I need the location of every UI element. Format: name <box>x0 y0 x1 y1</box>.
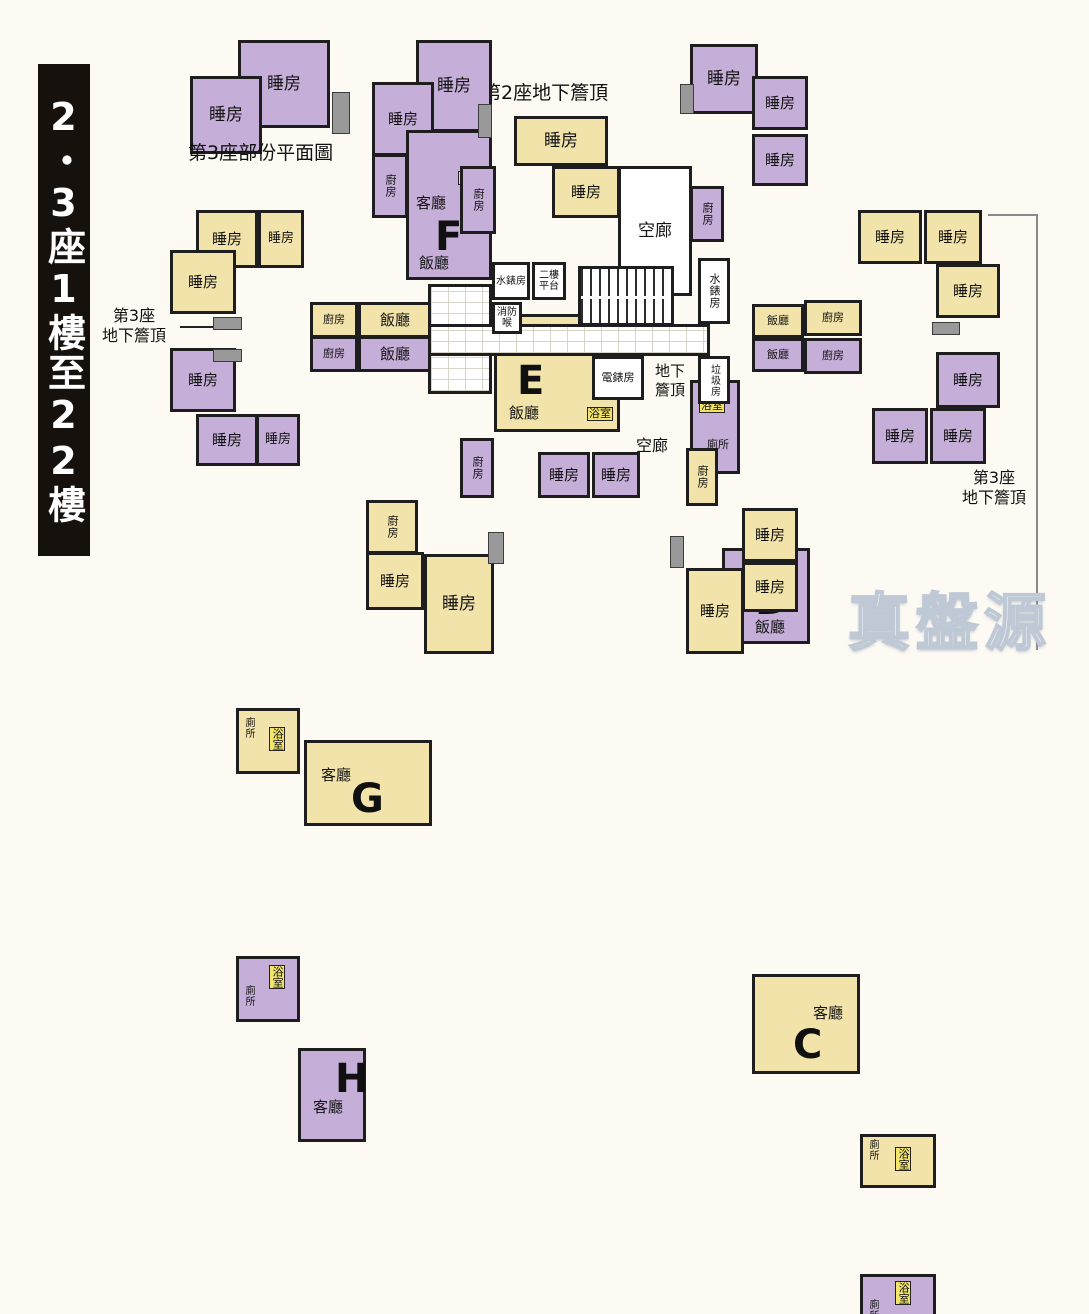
unit-letter: C <box>793 1025 822 1065</box>
room-label: 廚房 <box>471 456 483 480</box>
ac-unit <box>932 322 960 335</box>
room-label: 睡房 <box>442 595 476 614</box>
refuse-room: 垃圾房 <box>698 356 730 404</box>
unit-j-bedroom-2: 睡房 <box>424 554 494 654</box>
unit-g-bedroom-3: 睡房 <box>170 250 236 314</box>
unit-b-kitchen: 廚房 <box>804 338 862 374</box>
room-label: 睡房 <box>212 231 242 248</box>
room-label: 廁所 <box>243 717 254 739</box>
unit-d-bedroom-3: 睡房 <box>752 134 808 186</box>
ac-unit <box>680 84 694 114</box>
room-label: 睡房 <box>755 579 785 596</box>
unit-k-bedroom-2: 睡房 <box>592 452 640 498</box>
water-meter-room-left: 水錶房 <box>492 262 530 300</box>
room-label: 浴室 <box>895 1281 911 1305</box>
unit-b-bedroom-1: 睡房 <box>936 352 1000 408</box>
unit-letter: E <box>517 361 544 401</box>
floorplan-page: { "banner": { "text": "2・3座1樓至22樓" }, "c… <box>0 0 1089 657</box>
fire-hose: 消防喉 <box>492 302 522 334</box>
caption-line: 第3座 <box>88 306 180 326</box>
room-label: 浴室 <box>269 965 285 989</box>
room-label: 浴室 <box>587 407 613 421</box>
room-label: 睡房 <box>268 232 294 246</box>
unit-b-bedroom-2: 睡房 <box>872 408 928 464</box>
unit-g-bedroom-2: 睡房 <box>258 210 304 268</box>
room-label: 睡房 <box>388 111 418 128</box>
room-label: 廚房 <box>323 314 345 326</box>
room-label: 睡房 <box>953 283 983 300</box>
room-label: 廚房 <box>386 515 398 539</box>
unit-k-bedroom-1: 睡房 <box>538 452 590 498</box>
unit-f-kitchen: 廚房 <box>372 154 408 218</box>
room-label: 睡房 <box>875 229 905 246</box>
unit-d-bedroom-1: 睡房 <box>690 44 758 114</box>
room-label: 睡房 <box>765 95 795 112</box>
room-label: 水錶房 <box>708 273 720 309</box>
room-label: 電錶房 <box>602 372 635 384</box>
room-label: 睡房 <box>380 573 410 590</box>
unit-b-bedroom-3: 睡房 <box>930 408 986 464</box>
room-label: 垃圾房 <box>709 364 720 397</box>
room-label: 廚房 <box>384 174 396 198</box>
room-label: 睡房 <box>188 274 218 291</box>
unit-c-bedroom-1: 睡房 <box>858 210 922 264</box>
unit-h-bedroom-2: 睡房 <box>256 414 300 466</box>
ac-unit <box>670 536 684 568</box>
unit-a-kitchen: 廚房 <box>686 448 718 506</box>
corridor-tiles <box>428 324 710 356</box>
unit-d-bedroom-2: 睡房 <box>752 76 808 130</box>
room-label: 睡房 <box>938 229 968 246</box>
room-label: 水錶房 <box>496 276 526 287</box>
unit-h-main: H 客廳 <box>298 1048 366 1142</box>
unit-c-bedroom-2: 睡房 <box>924 210 982 264</box>
room-label: 浴室 <box>895 1147 911 1171</box>
ac-unit <box>213 317 242 330</box>
room-label: 客廳 <box>321 767 351 784</box>
open-corridor-bottom-label: 空廊 <box>636 432 668 456</box>
room-label: 廚房 <box>696 465 708 489</box>
room-label: 睡房 <box>765 152 795 169</box>
room-label: 睡房 <box>601 467 631 484</box>
unit-j-kitchen: 廚房 <box>366 500 418 554</box>
room-label: 飯廳 <box>755 619 785 636</box>
room-label: 睡房 <box>544 132 578 151</box>
unit-b-bathrooms: 浴室 廁所 <box>860 1274 936 1314</box>
room-label: 消防喉 <box>495 307 519 329</box>
room-label: 睡房 <box>188 372 218 389</box>
room-label: 睡房 <box>571 184 601 201</box>
unit-a-bedroom-1: 睡房 <box>742 508 798 562</box>
room-label: 飯廳 <box>380 312 410 329</box>
unit-g-main: 客廳 G <box>304 740 432 826</box>
room-label: 睡房 <box>943 428 973 445</box>
unit-g-bathrooms: 廁所 浴室 <box>236 708 300 774</box>
ac-unit <box>213 349 242 362</box>
partial-plan-caption: 第3座部份平面圖 <box>188 138 368 165</box>
unit-c-kitchen: 廚房 <box>804 300 862 336</box>
unit-h-dining: 飯廳 <box>358 336 432 372</box>
ac-unit <box>478 104 492 138</box>
room-label: 二樓平台 <box>535 270 563 292</box>
room-label: 睡房 <box>707 70 741 89</box>
unit-b-dining: 飯廳 <box>752 338 804 372</box>
unit-h-bedroom-1: 睡房 <box>196 414 258 466</box>
unit-g-dining: 飯廳 <box>358 302 432 338</box>
room-label: 睡房 <box>953 372 983 389</box>
room-label: 睡房 <box>265 433 291 447</box>
room-label: 廚房 <box>822 312 844 324</box>
core-canopy-label: 地下簷頂 <box>648 362 692 400</box>
unit-letter: F <box>435 217 462 257</box>
unit-e-bedroom-2: 睡房 <box>552 166 620 218</box>
unit-e-bedroom-1: 睡房 <box>514 116 608 166</box>
room-label: 飯廳 <box>380 346 410 363</box>
room-label: 廁所 <box>867 1299 878 1314</box>
room-label: 浴室 <box>269 727 285 751</box>
room-label: 飯廳 <box>767 349 789 361</box>
room-label: 睡房 <box>885 428 915 445</box>
room-label: 客廳 <box>416 195 446 212</box>
unit-d-kitchen: 廚房 <box>690 186 724 242</box>
unit-a-bedroom-3: 睡房 <box>686 568 744 654</box>
unit-c-main: 客廳 C <box>752 974 860 1074</box>
caption-line: 地下簷頂 <box>952 488 1036 508</box>
room-label: 睡房 <box>212 432 242 449</box>
unit-c-bathrooms: 廁所 浴室 <box>860 1134 936 1188</box>
room-label: 飯廳 <box>419 255 449 272</box>
room-label: 睡房 <box>437 77 471 96</box>
unit-k-kitchen: 廚房 <box>460 438 494 498</box>
block3-canopy-right-caption: 第3座 地下簷頂 <box>952 468 1036 508</box>
boundary-line <box>988 214 1038 216</box>
unit-letter: G <box>351 779 384 819</box>
unit-g-kitchen: 廚房 <box>310 302 358 338</box>
electric-meter-room: 電錶房 <box>592 356 644 400</box>
unit-h-bathrooms: 浴室 廁所 <box>236 956 300 1022</box>
room-label: 飯廳 <box>767 315 789 327</box>
watermark: 真盤源 <box>848 572 1088 662</box>
floor-range-text: 2・3座1樓至22樓 <box>37 95 92 525</box>
block2-canopy-caption: 第2座地下簷頂 <box>482 78 672 105</box>
room-label: 空廊 <box>638 222 672 241</box>
room-label: 廚房 <box>701 202 713 226</box>
room-label: 廚房 <box>323 348 345 360</box>
ac-unit <box>488 532 504 564</box>
room-label: 飯廳 <box>509 405 539 422</box>
room-label: 睡房 <box>267 75 301 94</box>
staircase <box>578 266 674 326</box>
unit-c-dining: 飯廳 <box>752 304 804 338</box>
floor-range-banner: 2・3座1樓至22樓 <box>38 64 90 556</box>
unit-a-bedroom-2: 睡房 <box>742 562 798 612</box>
unit-letter: H <box>335 1059 368 1099</box>
unit-h-kitchen: 廚房 <box>310 336 358 372</box>
block3-canopy-left-caption: 第3座 地下簷頂 <box>88 306 180 346</box>
room-label: 客廳 <box>813 1005 843 1022</box>
unit-c-bedroom-3: 睡房 <box>936 264 1000 318</box>
unit-e-kitchen: 廚房 <box>460 166 496 234</box>
room-label: 睡房 <box>700 603 730 620</box>
room-label: 睡房 <box>209 106 243 125</box>
podium-2f: 二樓平台 <box>532 262 566 300</box>
water-meter-room-right: 水錶房 <box>698 258 730 324</box>
room-label: 廚房 <box>822 350 844 362</box>
caption-line: 地下簷頂 <box>88 326 180 346</box>
room-label: 廁所 <box>243 985 254 1007</box>
room-label: 客廳 <box>313 1099 343 1116</box>
unit-j-bedroom-1: 睡房 <box>366 552 424 610</box>
ac-unit <box>332 92 350 134</box>
room-label: 廁所 <box>867 1139 878 1161</box>
room-label: 廚房 <box>472 188 484 212</box>
room-label: 睡房 <box>549 467 579 484</box>
caption-line: 第3座 <box>952 468 1036 488</box>
room-label: 睡房 <box>755 527 785 544</box>
